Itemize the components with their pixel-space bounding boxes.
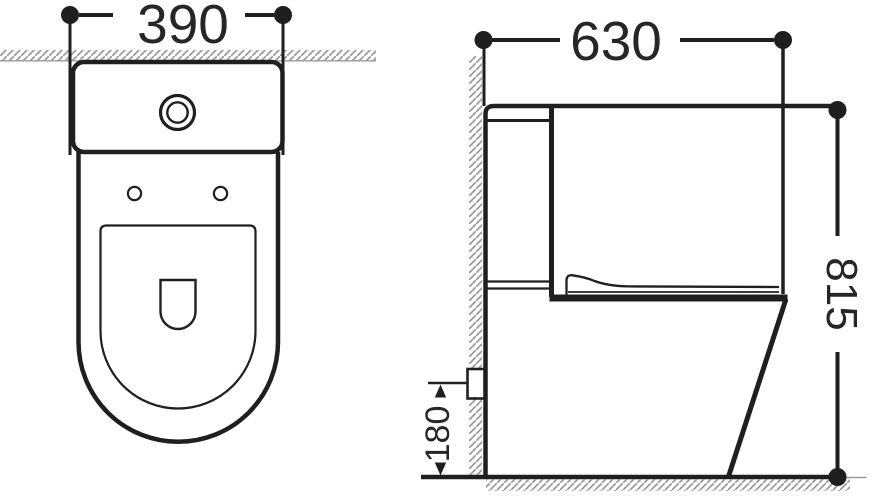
hinge-hole-left: [128, 187, 141, 200]
dim-endpoint-dot: [61, 6, 79, 24]
side-view: [421, 31, 867, 491]
dimension-label-630: 630: [546, 11, 686, 71]
top-view: [0, 6, 376, 442]
drawing-canvas: 390 630 815 180: [0, 0, 872, 496]
dim-endpoint-dot: [829, 468, 847, 486]
dim-endpoint-dot: [774, 31, 792, 49]
rim-band: [550, 295, 788, 302]
water-inlet: [468, 369, 485, 399]
outlet-shape: [161, 280, 196, 329]
hinge-hole-right: [214, 187, 227, 200]
dimension-label-815: 815: [816, 234, 866, 354]
seat-inner-outline: [101, 226, 256, 409]
dim-endpoint-dot: [274, 6, 292, 24]
dim-endpoint-dot: [829, 101, 847, 119]
dimension-label-390: 390: [113, 0, 253, 54]
tank-outline: [73, 62, 283, 152]
dim-endpoint-dot: [475, 31, 493, 49]
wall-hatch-band: [469, 56, 482, 477]
bowl-outer-outline: [79, 152, 279, 442]
bowl-front-slant: [729, 299, 787, 477]
floor-hatch-band: [486, 480, 850, 492]
dimension-label-180: 180: [418, 384, 458, 484]
